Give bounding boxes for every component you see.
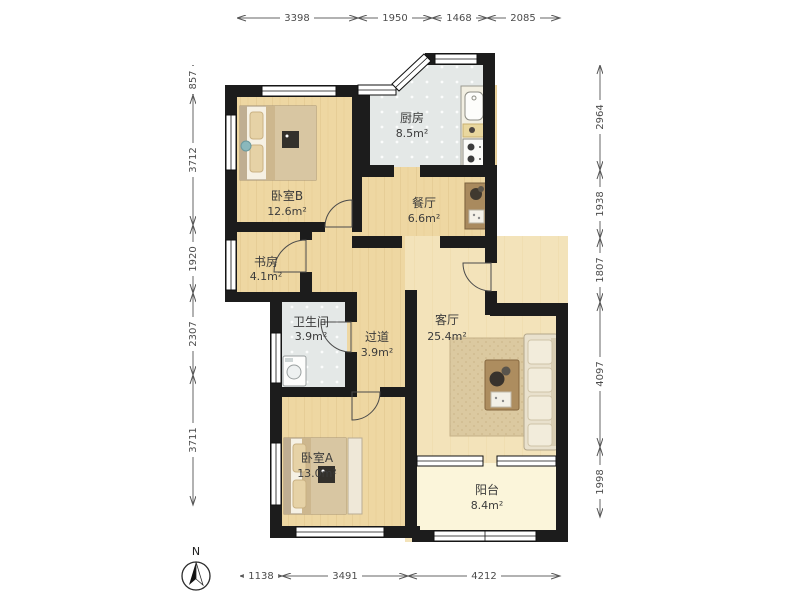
window: [271, 443, 281, 505]
window: [271, 333, 281, 383]
furniture-bedroom-b-bed: [240, 106, 316, 180]
room-area-bedroom-a: 13.0m²: [297, 467, 337, 480]
sofa-cushion: [528, 340, 552, 364]
dim-right-0: 2964: [595, 104, 606, 129]
room-area-hallway: 3.9m²: [361, 346, 394, 359]
decor-pillow: [241, 141, 251, 151]
dim-left-4: 3711: [188, 427, 199, 452]
dim-top-2: 1468: [446, 13, 471, 24]
dim-left-2: 1920: [188, 246, 199, 271]
room-area-study: 4.1m²: [250, 270, 283, 283]
dim-bottom-0: 1138: [248, 571, 273, 582]
room-label-living: 客厅: [435, 312, 459, 327]
window: [435, 54, 477, 64]
tv-tray: [282, 131, 299, 148]
sofa-cushion: [528, 368, 552, 392]
dim-top-1: 1950: [382, 13, 407, 24]
headboard: [284, 438, 291, 514]
bedside-cabinet: [348, 438, 362, 514]
compass: N: [182, 545, 210, 590]
pillow: [250, 112, 263, 139]
room-balcony-floor: [415, 463, 558, 532]
window: [296, 527, 384, 537]
room-label-hallway: 过道: [365, 330, 389, 344]
room-label-bathroom: 卫生间: [293, 315, 329, 329]
room-label-balcony: 阳台: [475, 482, 499, 497]
furniture-living: [450, 334, 558, 450]
dim-left-3: 2307: [188, 321, 199, 346]
room-area-kitchen: 8.5m²: [396, 127, 429, 140]
window: [434, 531, 536, 541]
room-label-study: 书房: [254, 254, 278, 269]
room-label-kitchen: 厨房: [400, 110, 424, 125]
dim-top-0: 3398: [284, 13, 309, 24]
sofa-cushion: [528, 424, 552, 446]
room-label-bedroom-b: 卧室B: [271, 188, 303, 203]
floor-plan-canvas: 卧室B 12.6m² 厨房 8.5m² 餐厅 6.6m² 书房 4.1m² 卫生…: [0, 0, 800, 600]
window: [226, 240, 236, 290]
stove: [463, 139, 485, 167]
dim-right-4: 1998: [595, 469, 606, 494]
furniture-bathroom-washer: [283, 356, 306, 386]
burner: [468, 144, 475, 151]
dim-left-0: 857: [188, 70, 199, 89]
room-label-dining: 餐厅: [412, 195, 436, 210]
washer-door: [287, 365, 301, 379]
window: [226, 115, 236, 170]
dim-left-1: 3712: [188, 147, 199, 172]
room-area-balcony: 8.4m²: [471, 499, 504, 512]
plant: [490, 372, 505, 387]
burner: [468, 156, 475, 163]
dim-bottom-2: 4212: [471, 571, 496, 582]
dim-top-3: 2085: [510, 13, 535, 24]
room-area-bedroom-b: 12.6m²: [267, 205, 307, 218]
room-label-bedroom-a: 卧室A: [301, 450, 334, 465]
room-area-bathroom: 3.9m²: [295, 330, 328, 343]
furniture-dining-sideboard: [465, 183, 488, 229]
tray: [491, 392, 511, 407]
dim-bottom-1: 3491: [332, 571, 357, 582]
pillow: [293, 480, 306, 508]
room-area-dining: 6.6m²: [408, 212, 441, 225]
tray: [469, 210, 484, 223]
dim-right-3: 4097: [595, 361, 606, 386]
dim-right-1: 1938: [595, 191, 606, 216]
window: [262, 86, 336, 96]
room-area-living: 25.4m²: [427, 330, 467, 343]
window: [358, 85, 396, 95]
pillow: [250, 145, 263, 172]
sofa-cushion: [528, 396, 552, 420]
dim-right-2: 1807: [595, 257, 606, 282]
north-label: N: [192, 545, 200, 558]
floor-plan-page: 卧室B 12.6m² 厨房 8.5m² 餐厅 6.6m² 书房 4.1m² 卫生…: [0, 0, 800, 600]
